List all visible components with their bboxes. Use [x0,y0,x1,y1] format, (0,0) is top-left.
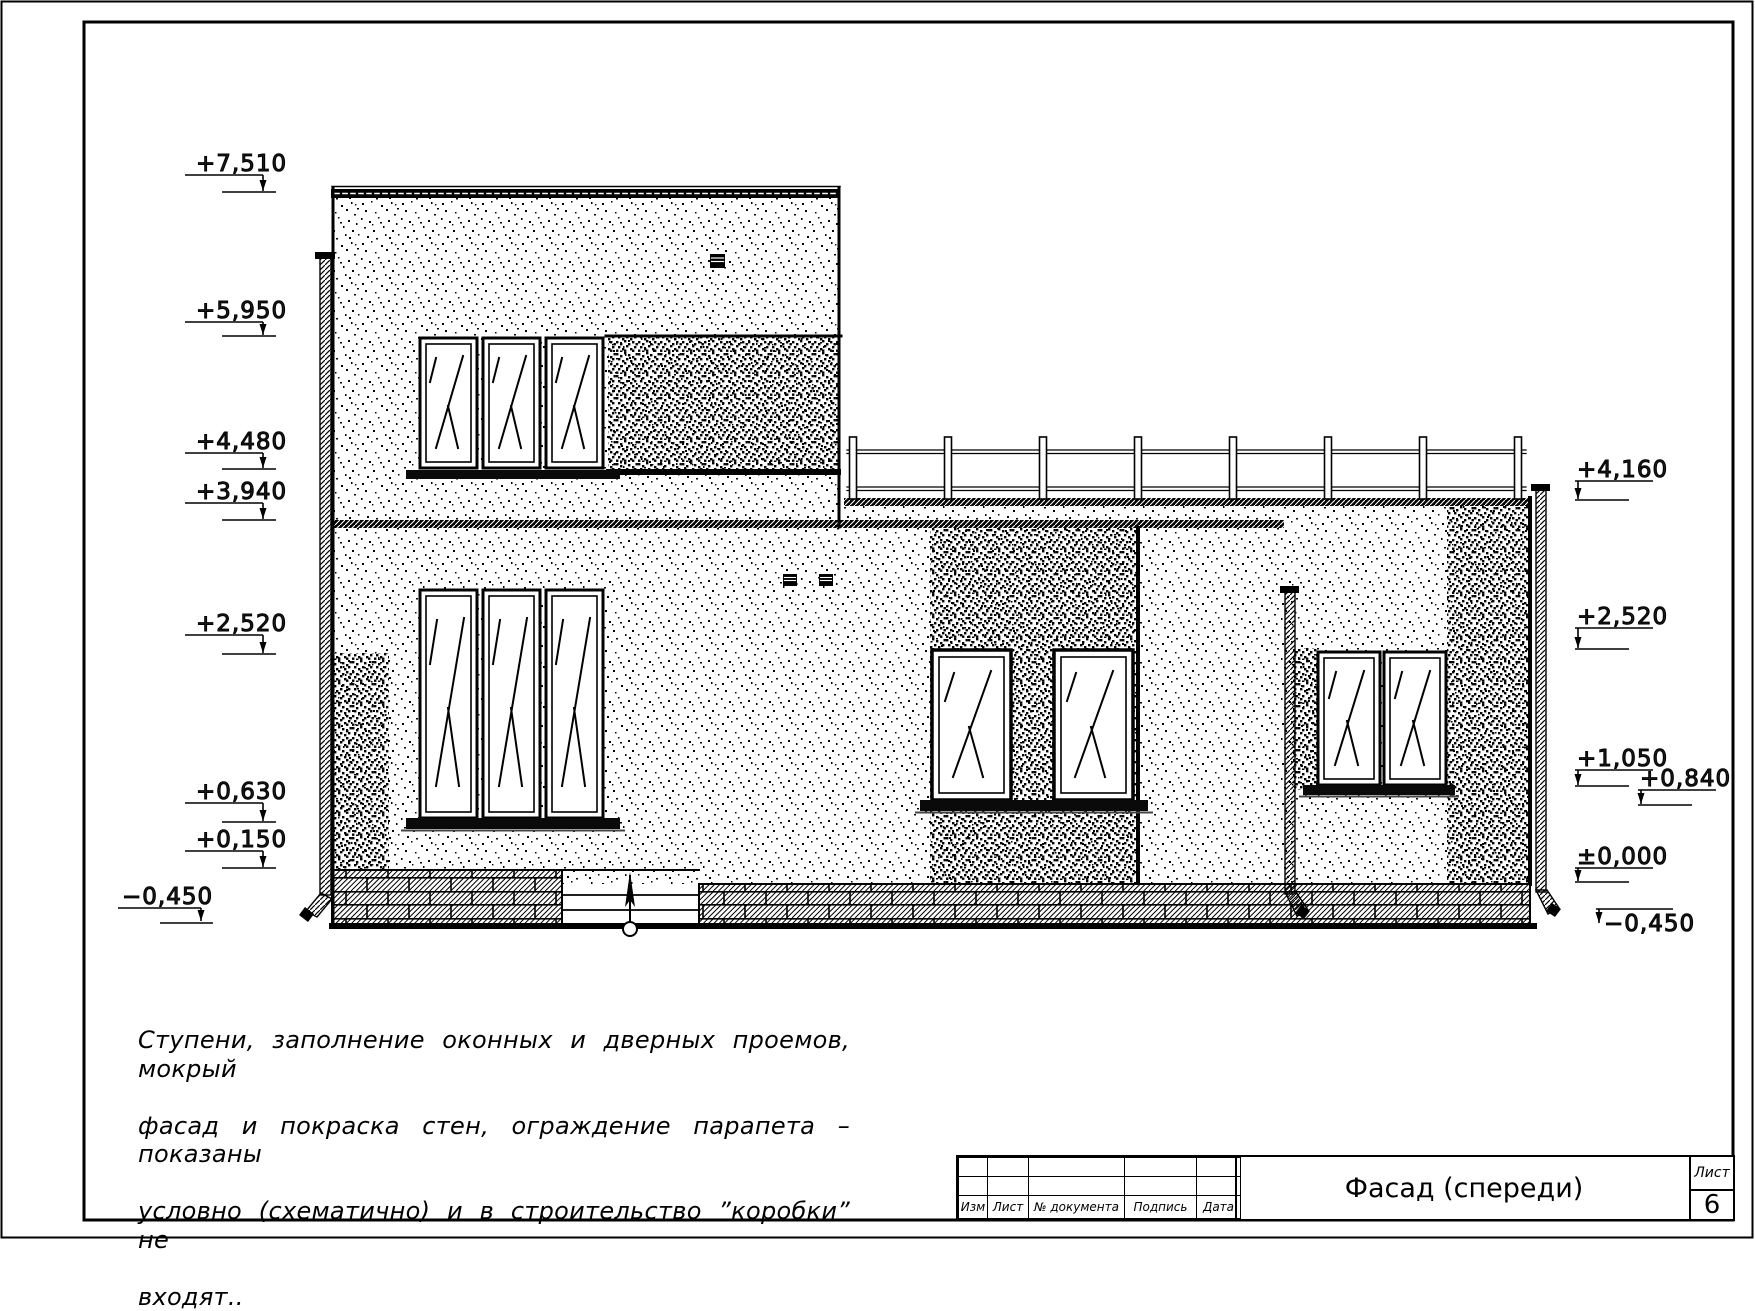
elevation-mark: −0,450 [1596,909,1696,937]
col-podpis: Подпись [1125,1196,1197,1219]
elevation-mark: +7,510 [185,151,287,192]
svg-text:+3,940: +3,940 [196,479,287,505]
col-izm: Изм [959,1196,988,1219]
svg-text:+2,520: +2,520 [196,611,287,637]
window-sill [406,818,620,829]
elevation-mark: +5,950 [185,298,287,336]
svg-text:+0,150: +0,150 [196,827,287,853]
svg-text:+0,840: +0,840 [1640,766,1731,792]
window-sill [1303,785,1455,795]
svg-text:±0,000: ±0,000 [1577,844,1668,870]
col-doc: № документа [1029,1196,1125,1219]
entrance-marker [623,922,637,936]
revision-table: Изм Лист № документа Подпись Дата [958,1157,1241,1219]
floor-slab-band [333,520,1284,528]
elevation-mark: +3,940 [185,479,287,520]
svg-text:+4,480: +4,480 [196,429,287,455]
svg-text:+4,160: +4,160 [1577,457,1668,483]
ground-line [329,923,1537,929]
elevation-marks-right: +4,160 +2,520 +1,050 +0,840 ±0,000 [1575,457,1732,937]
note-line: фасад и покраска стен, ограждение парапе… [138,1112,850,1198]
elevation-mark: +2,520 [185,611,287,654]
dark-plaster-strip-left [333,653,389,870]
upper-window-group [406,338,620,479]
elevation-mark: +0,840 [1638,766,1732,805]
svg-text:+5,950: +5,950 [196,298,287,324]
note-line: Ступени, заполнение оконных и дверных пр… [138,1026,850,1112]
general-note: Ступени, заполнение оконных и дверных пр… [138,1026,850,1311]
col-list: Лист [988,1196,1029,1219]
right-window-pair [1300,652,1458,797]
svg-text:−0,450: −0,450 [122,884,213,910]
elevation-marks-left: +7,510 +5,950 +4,480 +3,940 +2,520 [118,151,287,923]
title-block: Изм Лист № документа Подпись Дата Фасад … [956,1155,1735,1221]
elevation-mark: +0,150 [185,827,287,868]
sheet-label: Лист [1691,1157,1733,1191]
window-sill [920,800,1148,811]
drawing-title: Фасад (спереди) [1235,1157,1691,1219]
svg-text:+7,510: +7,510 [196,151,287,177]
svg-text:+0,630: +0,630 [196,779,287,805]
note-line: входят.. [138,1283,850,1311]
elevation-mark: ±0,000 [1575,844,1669,882]
lower-window-group [402,590,624,831]
window-sill [406,470,620,479]
dark-plaster-right [1447,506,1532,884]
sheet-number: 6 [1691,1191,1733,1219]
col-data: Дата [1197,1196,1241,1219]
downpipe-left [299,252,335,922]
elevation-mark: +4,480 [185,429,287,469]
downpipe-right [1531,484,1561,917]
dark-plaster-band-upper [608,337,838,470]
svg-text:−0,450: −0,450 [1604,911,1695,937]
elevation-mark: −0,450 [118,884,213,923]
elevation-mark: +2,520 [1575,604,1669,649]
parapet-railing [847,437,1526,499]
elevation-mark: +4,160 [1575,457,1669,500]
elevation-mark: +0,630 [185,779,287,822]
drawing-sheet: { "sheet": { "title": "Фасад (спереди)",… [0,0,1755,1240]
sheet-number-box: Лист 6 [1689,1157,1733,1219]
svg-text:+2,520: +2,520 [1577,604,1668,630]
facade-graphic [299,187,1561,937]
